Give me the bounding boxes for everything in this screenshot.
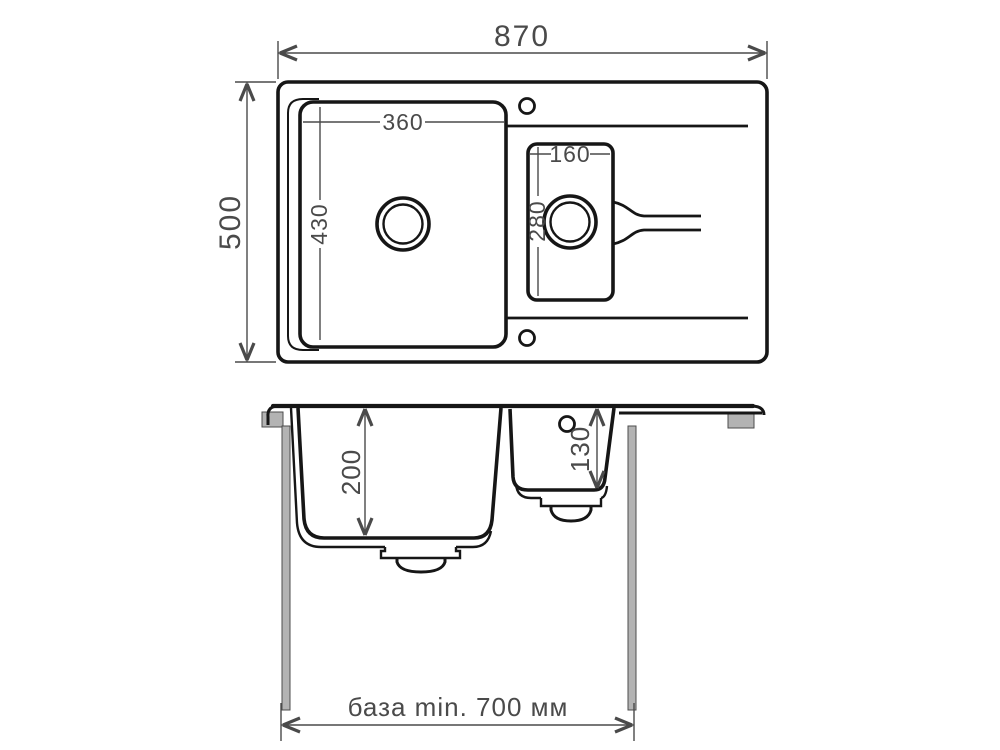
- main-drain-trap: [397, 558, 445, 572]
- label-main-bowl-width: 360: [382, 109, 423, 135]
- cabinet-right-side-panel: [628, 426, 636, 710]
- sink-dimension-diagram: 870 500 360 430 160 280 200 130 база min…: [0, 0, 1000, 750]
- label-main-bowl-length: 430: [306, 203, 332, 244]
- label-small-bowl-length: 280: [524, 200, 550, 241]
- label-base-cabinet-note: база min. 700 мм: [348, 692, 569, 722]
- main-drain-inner-icon: [384, 205, 423, 244]
- sink-outer-edge: [278, 82, 767, 362]
- small-drain-icon: [544, 196, 596, 248]
- small-drain-inner-icon: [551, 203, 590, 242]
- small-drain-flange: [541, 498, 601, 506]
- overflow-channel: [613, 202, 701, 244]
- main-bowl-shell-section: [291, 408, 491, 547]
- label-small-bowl-depth: 130: [565, 426, 595, 472]
- tap-hole-bottom-icon: [520, 331, 535, 346]
- right-mounting-clip: [728, 413, 754, 428]
- top-view: [278, 82, 767, 362]
- main-bowl-section: [298, 408, 501, 538]
- label-overall-width: 870: [494, 20, 550, 53]
- label-main-bowl-depth: 200: [336, 449, 366, 495]
- small-drain-trap: [551, 506, 591, 521]
- tap-hole-top-icon: [520, 99, 535, 114]
- drawing-outlines: [268, 82, 767, 572]
- dimension-lines: [235, 41, 767, 741]
- cabinet-left-side-panel: [282, 426, 290, 710]
- label-small-bowl-width: 160: [549, 141, 590, 167]
- label-overall-depth: 500: [214, 194, 247, 250]
- left-mounting-clip: [262, 412, 283, 427]
- main-drain-flange: [381, 547, 460, 558]
- main-drain-icon: [377, 198, 429, 250]
